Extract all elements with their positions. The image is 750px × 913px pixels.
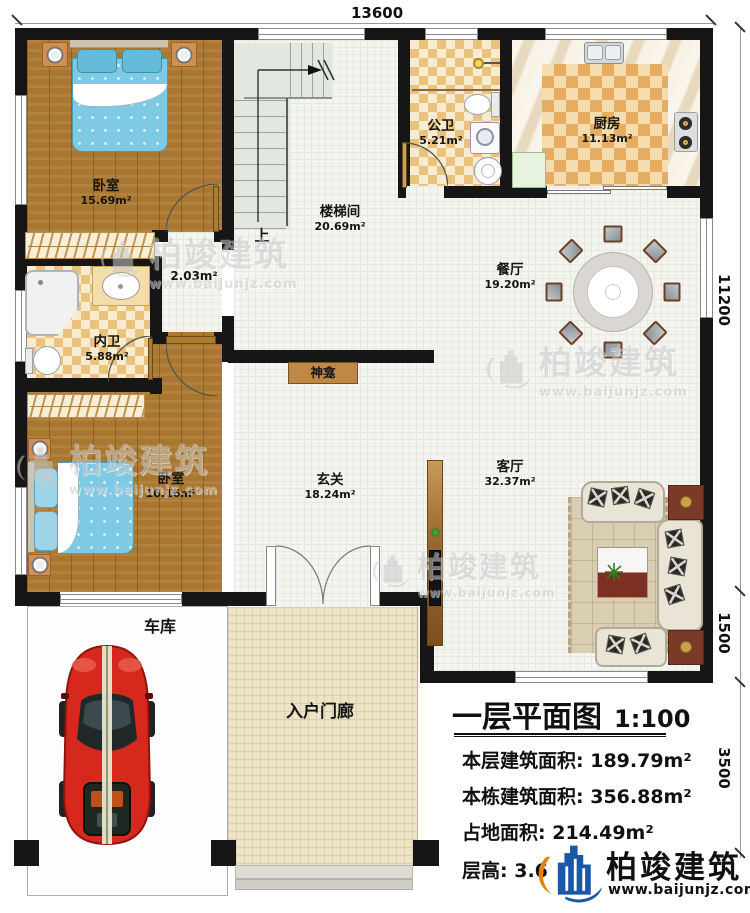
dining-chair — [664, 283, 681, 302]
room-label-public-bath: 公卫5.21m² — [419, 119, 462, 147]
entry-door-leaf — [370, 546, 380, 606]
bed-headboard — [70, 40, 168, 48]
dimension-right-lower: 3500 — [715, 747, 733, 789]
dimension-right-upper: 11200 — [715, 274, 733, 326]
floor-plan: 卧室15.69m² 楼梯间20.69m² 上 2.03m² 公卫5.21m² 厨… — [0, 0, 750, 913]
pillar — [14, 840, 39, 866]
pillar — [413, 840, 439, 866]
door-leaf — [166, 336, 216, 344]
window — [258, 28, 365, 40]
burner — [679, 117, 692, 130]
window — [425, 28, 478, 40]
burner — [679, 136, 692, 149]
page-title: 一层平面图 — [452, 692, 602, 736]
wall-segment — [15, 28, 27, 95]
table-ornament — [680, 641, 692, 653]
wall-segment — [420, 671, 515, 683]
pillar — [211, 840, 236, 866]
nightstand — [28, 438, 51, 460]
stair-direction-arrow — [252, 58, 336, 226]
brand-name: 柏竣建筑 — [606, 842, 742, 887]
pillow — [34, 468, 58, 508]
room-label-garage: 车库 — [144, 618, 176, 636]
pillow — [122, 49, 162, 73]
brand-url: www.baijunjz.com — [608, 882, 750, 898]
room-label-living: 客厅32.37m² — [484, 460, 535, 488]
room-label-dining: 餐厅19.20m² — [484, 263, 535, 291]
shower-divider — [412, 89, 500, 91]
wall-segment — [478, 28, 545, 40]
drawing-scale: 1:100 — [614, 705, 690, 733]
washer-drum — [476, 128, 494, 146]
lazy-susan — [605, 284, 621, 300]
toilet — [464, 94, 491, 115]
wall-segment — [150, 256, 162, 338]
wall-segment — [365, 28, 425, 40]
shower-fixture — [473, 58, 484, 69]
room-label-corridor: 2.03m² — [170, 270, 217, 284]
door-arc — [166, 344, 218, 396]
wall-segment — [15, 28, 258, 40]
wall-segment — [444, 186, 512, 198]
dimension-line-right — [740, 28, 741, 858]
plant-icon — [604, 562, 624, 582]
table-ornament — [680, 496, 692, 508]
room-label-kitchen: 厨房11.13m² — [581, 117, 632, 145]
title-block-heading: 一层平面图 1:100 — [452, 692, 690, 736]
window — [60, 594, 182, 604]
title-row: 本层建筑面积: 189.79m² — [462, 746, 692, 773]
room-label-bedroom2: 卧室16.16m² — [145, 472, 196, 500]
cushion — [606, 635, 626, 655]
wardrobe — [25, 232, 155, 259]
window — [515, 671, 648, 683]
window — [700, 218, 713, 318]
porch-step — [235, 879, 413, 890]
sink-basin — [481, 164, 495, 178]
brand-logo-icon — [536, 840, 606, 904]
shrine-label: 神龛 — [310, 366, 335, 380]
dining-chair — [604, 342, 623, 359]
toilet — [33, 346, 61, 375]
refrigerator — [512, 152, 546, 188]
cushion — [668, 557, 688, 577]
bathtub-drain — [38, 280, 43, 285]
room-label-inner-bath: 内卫5.88m² — [85, 335, 128, 363]
nightstand — [171, 42, 197, 67]
wall-segment — [222, 230, 234, 250]
sink-basin — [605, 45, 621, 60]
entry-door-arcs — [276, 544, 370, 606]
dining-chair — [604, 226, 623, 243]
wall-segment — [214, 332, 234, 344]
plant-icon — [431, 528, 440, 537]
wall-segment — [15, 592, 60, 606]
cushion — [665, 529, 685, 549]
room-label-bedroom1: 卧室15.69m² — [80, 179, 131, 207]
room-label-stairwell: 楼梯间20.69m² — [314, 205, 365, 233]
wall-segment — [182, 592, 266, 606]
sliding-door — [547, 190, 611, 194]
wall-segment — [667, 186, 713, 198]
tv — [429, 550, 441, 606]
window — [545, 28, 667, 40]
stair-up-label: 上 — [254, 227, 269, 244]
window — [15, 487, 27, 575]
cushion — [587, 487, 607, 507]
wall-segment — [380, 592, 420, 606]
entry-door-leaf — [266, 546, 276, 606]
toilet-tank — [25, 348, 33, 374]
cushion — [611, 486, 630, 505]
door-arc — [404, 142, 448, 188]
pillow — [34, 511, 58, 551]
wall-segment — [648, 671, 713, 683]
wall-segment — [500, 40, 512, 186]
dimension-top: 13600 — [346, 4, 408, 22]
room-label-foyer: 玄关18.24m² — [304, 473, 355, 501]
wall-segment — [222, 40, 234, 230]
dining-chair — [546, 283, 563, 302]
door-arc — [166, 184, 218, 232]
shower-pipe — [484, 62, 500, 64]
sink-basin — [587, 45, 603, 60]
wardrobe — [27, 394, 145, 418]
nightstand — [28, 554, 51, 576]
pillow — [77, 49, 117, 73]
toilet-tank — [491, 92, 500, 117]
room-label-porch: 入户门廊 — [286, 703, 354, 723]
porch-floor — [228, 607, 418, 865]
title-row: 本栋建筑面积: 356.88m² — [462, 782, 692, 809]
title-underline — [454, 733, 666, 737]
nightstand — [42, 42, 68, 67]
window — [15, 95, 27, 205]
sink-drain — [118, 284, 123, 289]
porch-step — [235, 865, 413, 879]
dimension-right-mid: 1500 — [715, 612, 733, 654]
sports-car — [57, 643, 157, 848]
dimension-line-top — [15, 23, 713, 24]
sliding-door — [603, 186, 667, 190]
